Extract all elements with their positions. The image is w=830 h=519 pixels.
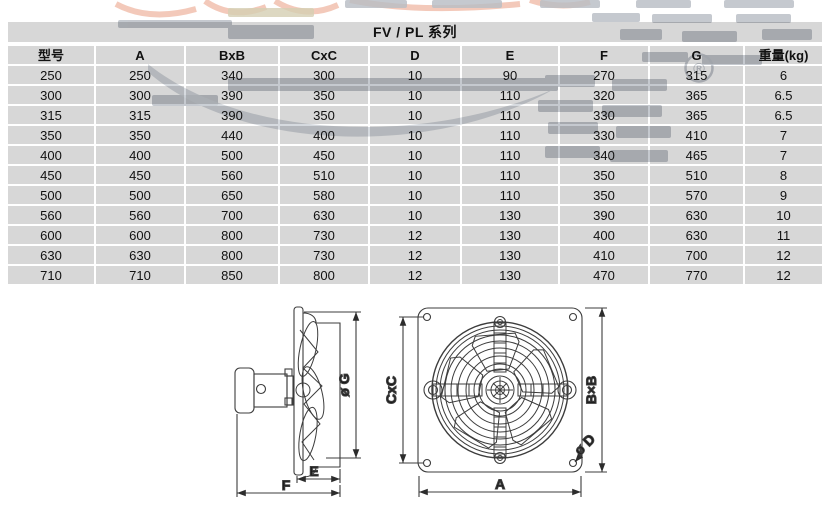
table-cell: 730 [280, 226, 368, 244]
table-cell: 630 [650, 206, 743, 224]
model-cell: 315 [8, 106, 94, 124]
table-cell: 12 [370, 246, 460, 264]
table-cell: 580 [280, 186, 368, 204]
table-cell: 7 [745, 146, 822, 164]
table-cell: 6.5 [745, 106, 822, 124]
svg-text:ø D: ø D [571, 431, 598, 458]
svg-text:E: E [309, 463, 318, 479]
table-cell: 710 [96, 266, 184, 284]
column-header: A [96, 46, 184, 64]
table-cell: 300 [96, 86, 184, 104]
table-cell: 8 [745, 166, 822, 184]
table-cell: 410 [560, 246, 648, 264]
column-header: F [560, 46, 648, 64]
table-cell: 10 [745, 206, 822, 224]
table-cell: 11 [745, 226, 822, 244]
table-cell: 90 [462, 66, 558, 84]
series-title: FV / PL 系列 [8, 22, 822, 42]
grille-outer-ring [432, 322, 568, 458]
corner-holes [424, 314, 577, 467]
table-row: 300300390350101103203656.5 [8, 86, 822, 104]
svg-text:B×B: B×B [583, 376, 599, 404]
column-header: G [650, 46, 743, 64]
table-row: 350350440400101103304107 [8, 126, 822, 144]
table-cell: 130 [462, 266, 558, 284]
watermark-script-stroke [116, 0, 590, 14]
svg-text:A: A [495, 476, 505, 492]
table-cell: 770 [650, 266, 743, 284]
table-cell: 440 [186, 126, 278, 144]
svg-text:F: F [282, 477, 291, 493]
table-cell: 650 [186, 186, 278, 204]
table-cell: 9 [745, 186, 822, 204]
table-cell: 10 [370, 86, 460, 104]
table-cell: 250 [96, 66, 184, 84]
table-cell: 340 [560, 146, 648, 164]
table-cell: 330 [560, 126, 648, 144]
table-cell: 500 [186, 146, 278, 164]
table-cell: 110 [462, 106, 558, 124]
table-body: 2502503403001090270315630030039035010110… [8, 66, 822, 284]
table-cell: 10 [370, 126, 460, 144]
table-row: 5605607006301013039063010 [8, 206, 822, 224]
table-cell: 315 [650, 66, 743, 84]
plate-edge [294, 307, 303, 475]
dim-inner-depth: E [297, 463, 340, 483]
table-cell: 350 [560, 166, 648, 184]
table-cell: 270 [560, 66, 648, 84]
model-cell: 560 [8, 206, 94, 224]
table-cell: 7 [745, 126, 822, 144]
table-cell: 470 [560, 266, 648, 284]
svg-text:ø G: ø G [336, 373, 352, 396]
table-cell: 10 [370, 166, 460, 184]
fan-side-view: ø G E F [235, 307, 361, 497]
catalog-page: { "title": "FV / PL 系列", "registered_sym… [0, 0, 830, 519]
table-cell: 10 [370, 206, 460, 224]
table-row: 7107108508001213047077012 [8, 266, 822, 284]
table-cell: 500 [96, 186, 184, 204]
table-cell: 365 [650, 86, 743, 104]
hub [479, 369, 521, 411]
table-cell: 510 [280, 166, 368, 184]
table-cell: 560 [186, 166, 278, 184]
table-cell: 350 [96, 126, 184, 144]
impeller-front [434, 328, 566, 455]
table-cell: 10 [370, 146, 460, 164]
dim-plate-width: A [419, 476, 581, 497]
table-cell: 12 [370, 266, 460, 284]
table-cell: 400 [96, 146, 184, 164]
table-cell: 320 [560, 86, 648, 104]
table-cell: 130 [462, 206, 558, 224]
table-cell: 300 [280, 66, 368, 84]
model-cell: 400 [8, 146, 94, 164]
table-cell: 630 [280, 206, 368, 224]
table-cell: 350 [280, 86, 368, 104]
column-header: E [462, 46, 558, 64]
dim-hole-pitch: CxC [383, 317, 423, 463]
model-cell: 300 [8, 86, 94, 104]
table-cell: 10 [370, 66, 460, 84]
table-cell: 12 [745, 246, 822, 264]
table-header-row: 型号ABxBCxCDEFG重量(kg) [8, 46, 822, 64]
table-cell: 800 [186, 226, 278, 244]
table-cell: 390 [186, 106, 278, 124]
table-cell: 130 [462, 226, 558, 244]
column-header: CxC [280, 46, 368, 64]
table-cell: 12 [745, 266, 822, 284]
model-cell: 250 [8, 66, 94, 84]
dim-plate-size: B×B [583, 308, 607, 472]
table-cell: 390 [186, 86, 278, 104]
svg-text:CxC: CxC [383, 376, 399, 404]
table-row: 25025034030010902703156 [8, 66, 822, 84]
column-header: 型号 [8, 46, 94, 64]
table-cell: 700 [650, 246, 743, 264]
table-row: 315315390350101103303656.5 [8, 106, 822, 124]
table-cell: 800 [186, 246, 278, 264]
table-cell: 450 [96, 166, 184, 184]
table-cell: 340 [186, 66, 278, 84]
table-row: 6306308007301213041070012 [8, 246, 822, 264]
model-cell: 630 [8, 246, 94, 264]
spec-table: FV / PL 系列 型号ABxBCxCDEFG重量(kg) 250250340… [8, 22, 822, 286]
grille-struts [433, 323, 567, 457]
grille-rings [436, 326, 564, 454]
model-cell: 450 [8, 166, 94, 184]
table-cell: 465 [650, 146, 743, 164]
table-cell: 800 [280, 266, 368, 284]
table-cell: 410 [650, 126, 743, 144]
table-cell: 390 [560, 206, 648, 224]
table-cell: 6.5 [745, 86, 822, 104]
model-cell: 710 [8, 266, 94, 284]
table-cell: 630 [650, 226, 743, 244]
table-row: 500500650580101103505709 [8, 186, 822, 204]
table-cell: 850 [186, 266, 278, 284]
dim-fan-diameter: ø G [304, 312, 361, 458]
grille-screws [424, 317, 576, 464]
mounting-plate [418, 308, 582, 472]
frame-outline [303, 313, 340, 477]
dim-hole-diameter: ø D [571, 431, 598, 462]
table-cell: 130 [462, 246, 558, 264]
table-row: 6006008007301213040063011 [8, 226, 822, 244]
table-cell: 12 [370, 226, 460, 244]
table-cell: 350 [560, 186, 648, 204]
model-cell: 350 [8, 126, 94, 144]
table-cell: 450 [280, 146, 368, 164]
dim-total-depth: F [237, 414, 340, 497]
table-cell: 510 [650, 166, 743, 184]
model-cell: 600 [8, 226, 94, 244]
table-cell: 110 [462, 86, 558, 104]
column-header: 重量(kg) [745, 46, 822, 64]
column-header: BxB [186, 46, 278, 64]
table-cell: 350 [280, 106, 368, 124]
fan-front-view: CxC B×B A ø D [383, 308, 607, 497]
column-header: D [370, 46, 460, 64]
table-cell: 600 [96, 226, 184, 244]
impeller-blades [294, 320, 328, 462]
table-cell: 10 [370, 186, 460, 204]
table-cell: 730 [280, 246, 368, 264]
table-cell: 10 [370, 106, 460, 124]
table-cell: 570 [650, 186, 743, 204]
model-cell: 500 [8, 186, 94, 204]
table-row: 450450560510101103505108 [8, 166, 822, 184]
table-cell: 400 [560, 226, 648, 244]
table-cell: 400 [280, 126, 368, 144]
table-row: 400400500450101103404657 [8, 146, 822, 164]
table-cell: 315 [96, 106, 184, 124]
motor-outline [235, 368, 293, 413]
table-cell: 6 [745, 66, 822, 84]
table-cell: 365 [650, 106, 743, 124]
table-cell: 560 [96, 206, 184, 224]
table-cell: 110 [462, 186, 558, 204]
table-cell: 630 [96, 246, 184, 264]
table-cell: 110 [462, 166, 558, 184]
table-cell: 700 [186, 206, 278, 224]
table-cell: 110 [462, 126, 558, 144]
table-cell: 330 [560, 106, 648, 124]
table-cell: 110 [462, 146, 558, 164]
